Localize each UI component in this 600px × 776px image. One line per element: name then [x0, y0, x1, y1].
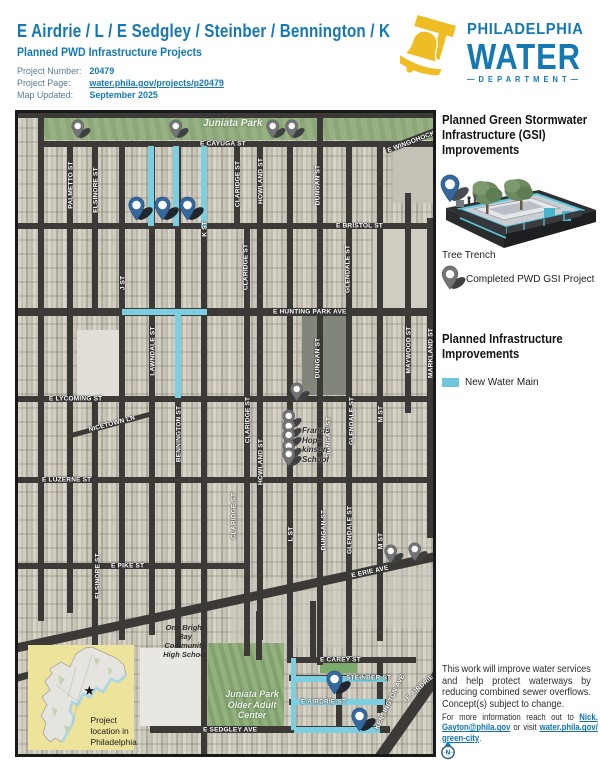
svg-text:N: N [446, 750, 451, 757]
